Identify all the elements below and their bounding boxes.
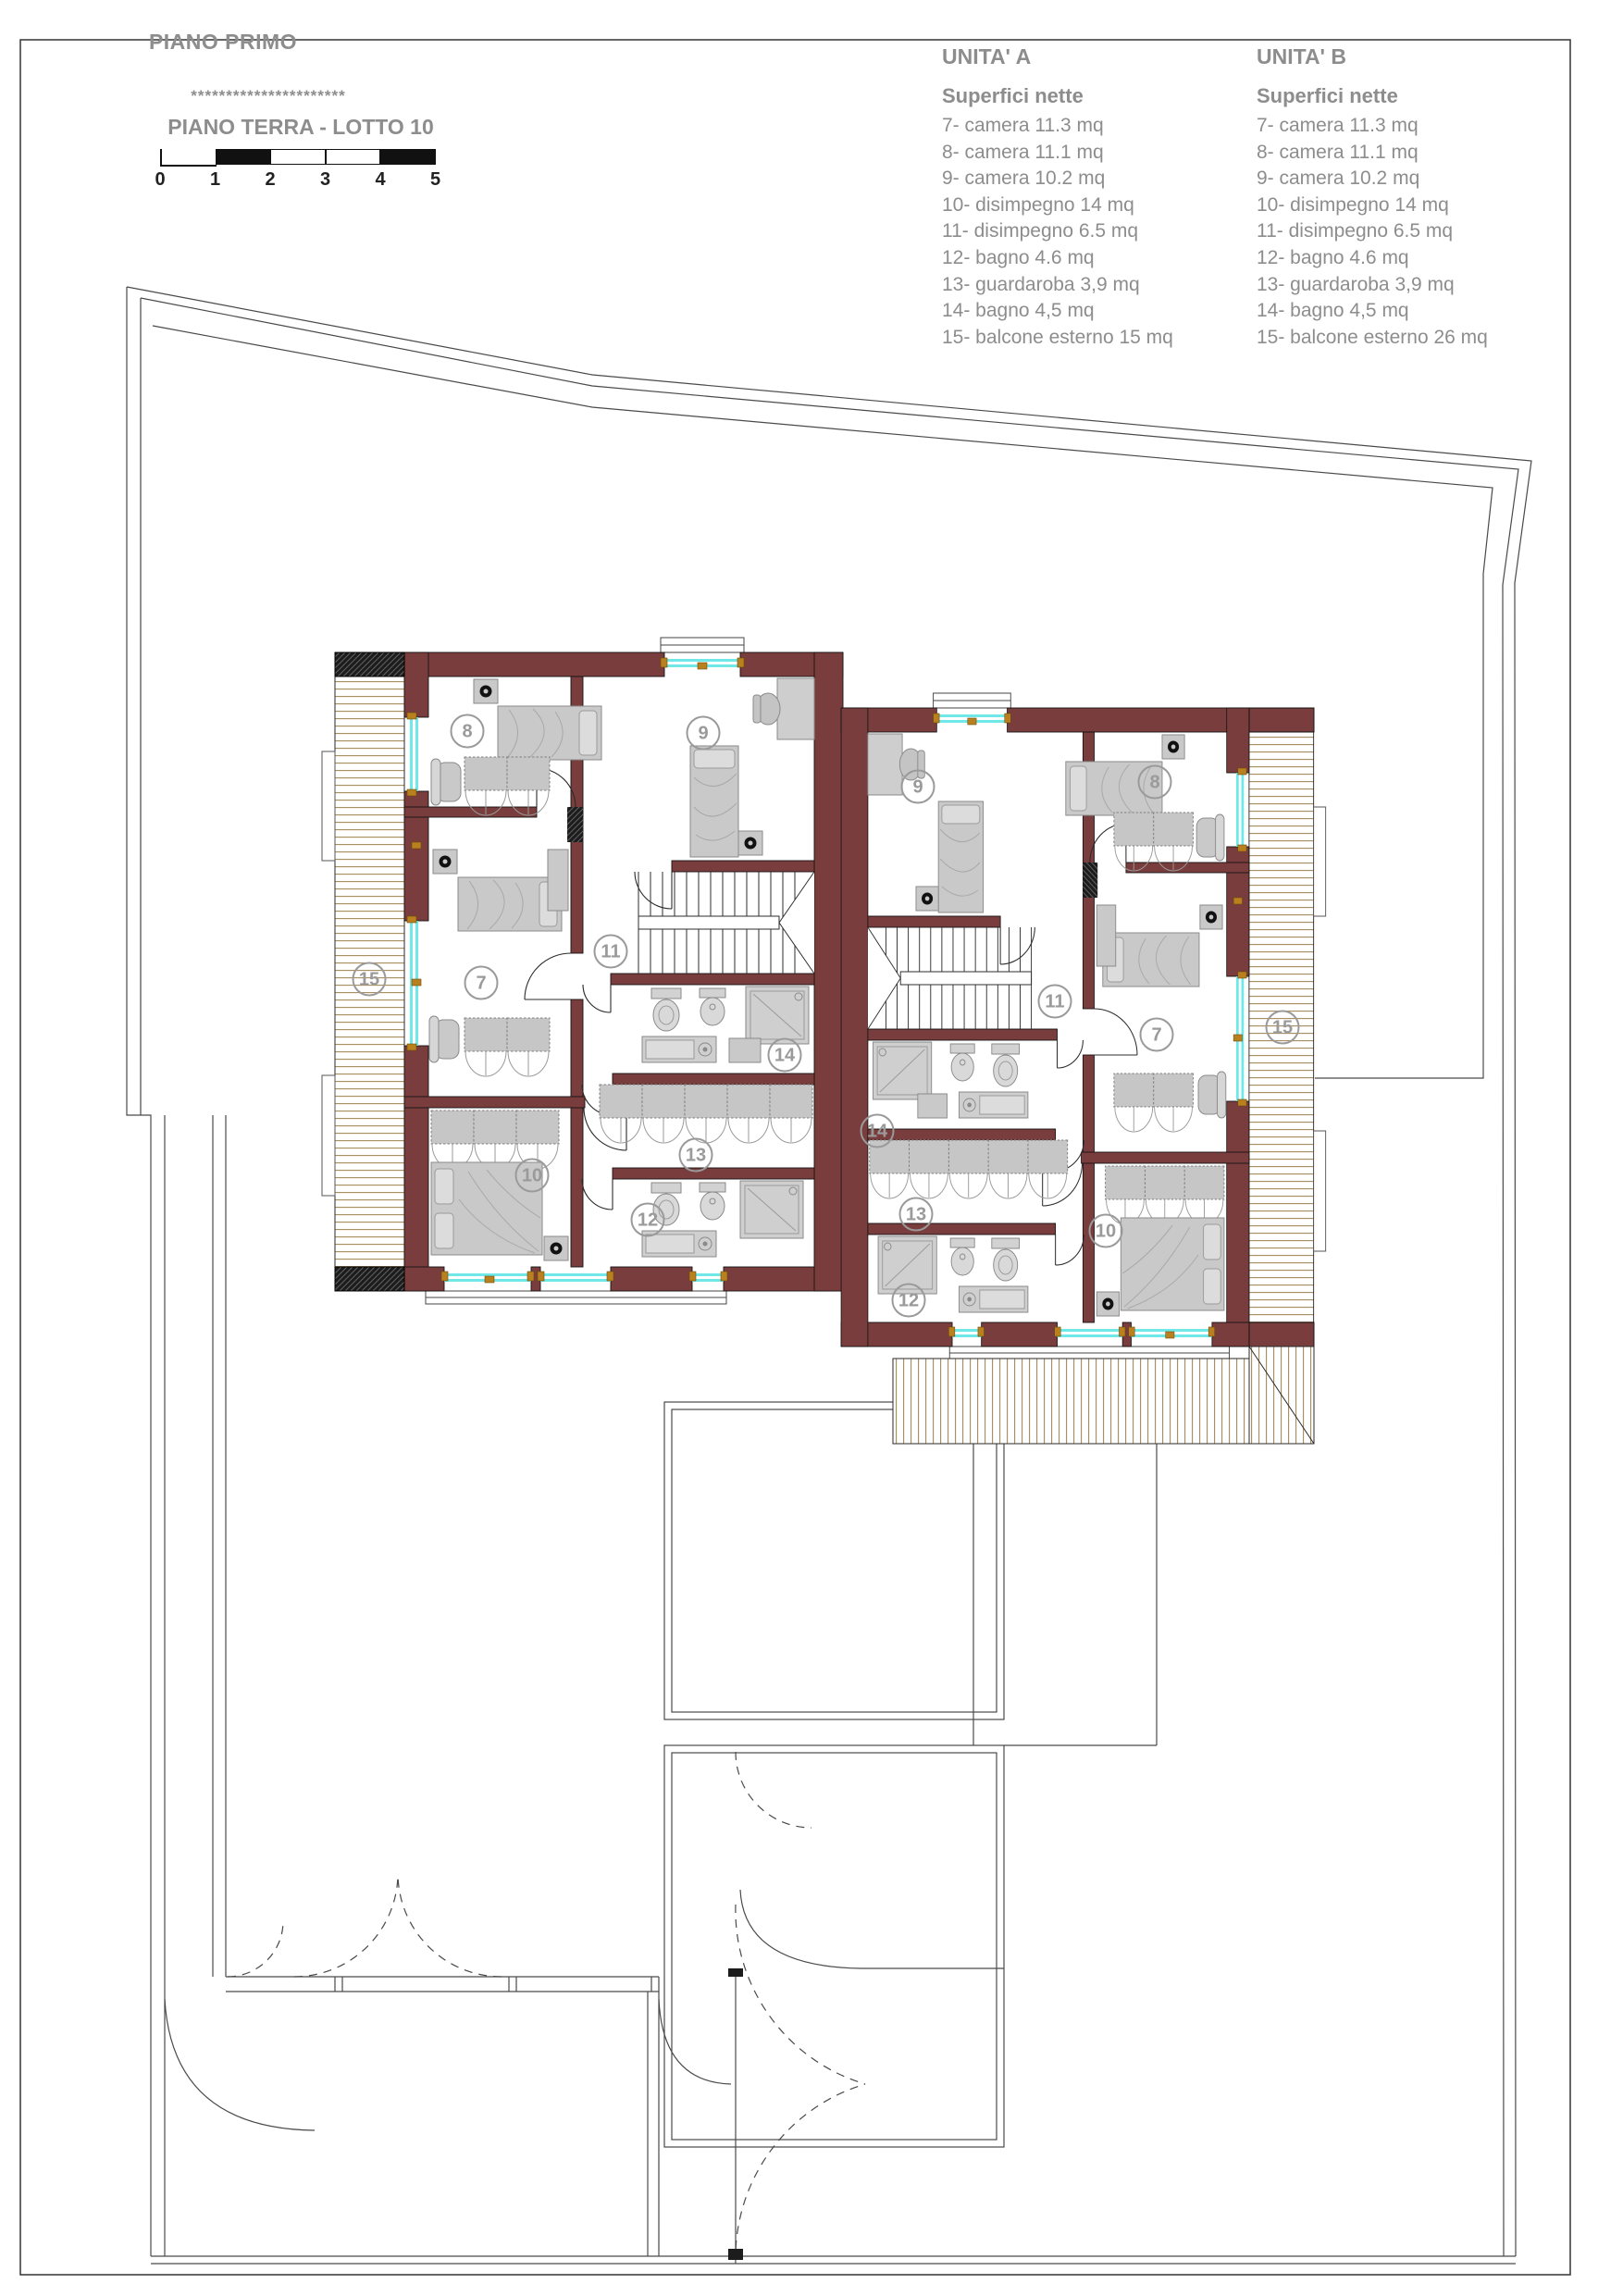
driveway-curves [165, 1890, 1004, 2130]
balcony-b-bottom [893, 1359, 1249, 1444]
scale-tick: 0 [155, 169, 165, 191]
legend-b-subtitle: Superfici nette [1257, 84, 1562, 108]
scale-bar-segment [216, 149, 271, 165]
legend-b-title: UNITA' B [1257, 44, 1562, 69]
room-label-a13: 13 [679, 1138, 713, 1173]
title-separator: ********************** [130, 87, 407, 105]
room-label-b8: 8 [1138, 765, 1172, 800]
room-label-b7: 7 [1140, 1018, 1174, 1052]
scale-bar-segment [380, 149, 436, 165]
legend-item: 11- disimpegno 6.5 mq [942, 218, 1247, 245]
legend-item: 13- guardaroba 3,9 mq [1257, 272, 1562, 299]
room-label-b14: 14 [861, 1114, 895, 1148]
room-label-a11: 11 [594, 935, 628, 969]
page-title: PIANO PRIMO [130, 30, 316, 55]
room-label-b11: 11 [1038, 985, 1072, 1019]
room-label-a15: 15 [353, 962, 387, 997]
room-label-b13: 13 [899, 1198, 934, 1232]
legend-item: 9- camera 10.2 mq [1257, 166, 1562, 192]
legend-item: 14- bagno 4,5 mq [1257, 298, 1562, 325]
legend-item: 14- bagno 4,5 mq [942, 298, 1247, 325]
page-subtitle: PIANO TERRA - LOTTO 10 [153, 115, 449, 140]
scale-bar-open-segment [160, 149, 217, 167]
balcony-end-block [335, 1267, 404, 1291]
legend-item: 15- balcone esterno 15 mq [942, 325, 1247, 352]
ground-window-band [226, 1977, 659, 2256]
room-label-a14: 14 [768, 1038, 802, 1073]
room-label-b9: 9 [901, 770, 935, 804]
unit-a [322, 638, 843, 1304]
scale-bar-segment [326, 149, 381, 165]
legend-item: 9- camera 10.2 mq [942, 166, 1247, 192]
room-label-a9: 9 [687, 716, 721, 751]
room-label-b10: 10 [1089, 1214, 1123, 1248]
legend-item: 10- disimpegno 14 mq [1257, 192, 1562, 219]
legend-item: 8- camera 11.1 mq [1257, 140, 1562, 167]
patio-outline-upper [664, 1402, 1004, 1719]
legend-unit-a: UNITA' A Superfici nette 7- camera 11.3 … [942, 44, 1247, 351]
scale-tick: 3 [320, 169, 330, 191]
scale-tick: 5 [430, 169, 440, 191]
legend-b-items: 7- camera 11.3 mq8- camera 11.1 mq9- cam… [1257, 113, 1562, 351]
legend-item: 12- bagno 4.6 mq [942, 245, 1247, 272]
room-label-a10: 10 [515, 1159, 550, 1193]
legend-item: 13- guardaroba 3,9 mq [942, 272, 1247, 299]
patio-outline-lower [664, 1745, 1157, 2147]
legend-item: 8- camera 11.1 mq [942, 140, 1247, 167]
scale-tick: 1 [210, 169, 220, 191]
legend-a-title: UNITA' A [942, 44, 1247, 69]
room-label-a7: 7 [465, 966, 499, 1000]
legend-item: 11- disimpegno 6.5 mq [1257, 218, 1562, 245]
room-label-b12: 12 [892, 1284, 926, 1318]
balcony-corner-wall [1249, 708, 1314, 732]
room-label-a8: 8 [451, 714, 485, 749]
legend-item: 12- bagno 4.6 mq [1257, 245, 1562, 272]
scale-tick: 4 [375, 169, 385, 191]
legend-a-subtitle: Superfici nette [942, 84, 1247, 108]
ground-walls-under-b [973, 1444, 1157, 1745]
drawing-sheet: PIANO PRIMO ********************** PIANO… [0, 0, 1623, 2296]
balcony-end-block [335, 652, 404, 676]
scale-tick: 2 [265, 169, 275, 191]
legend-unit-b: UNITA' B Superfici nette 7- camera 11.3 … [1257, 44, 1562, 351]
legend-item: 7- camera 11.3 mq [1257, 113, 1562, 140]
room-label-a12: 12 [631, 1203, 665, 1237]
balcony-corner-wall [1249, 1322, 1314, 1347]
room-label-b15: 15 [1266, 1011, 1300, 1045]
scale-bar-segment [270, 149, 326, 165]
legend-item: 15- balcone esterno 26 mq [1257, 325, 1562, 352]
dashed-doors [228, 1752, 865, 2264]
legend-a-items: 7- camera 11.3 mq8- camera 11.1 mq9- cam… [942, 113, 1247, 351]
legend-item: 7- camera 11.3 mq [942, 113, 1247, 140]
legend-item: 10- disimpegno 14 mq [942, 192, 1247, 219]
